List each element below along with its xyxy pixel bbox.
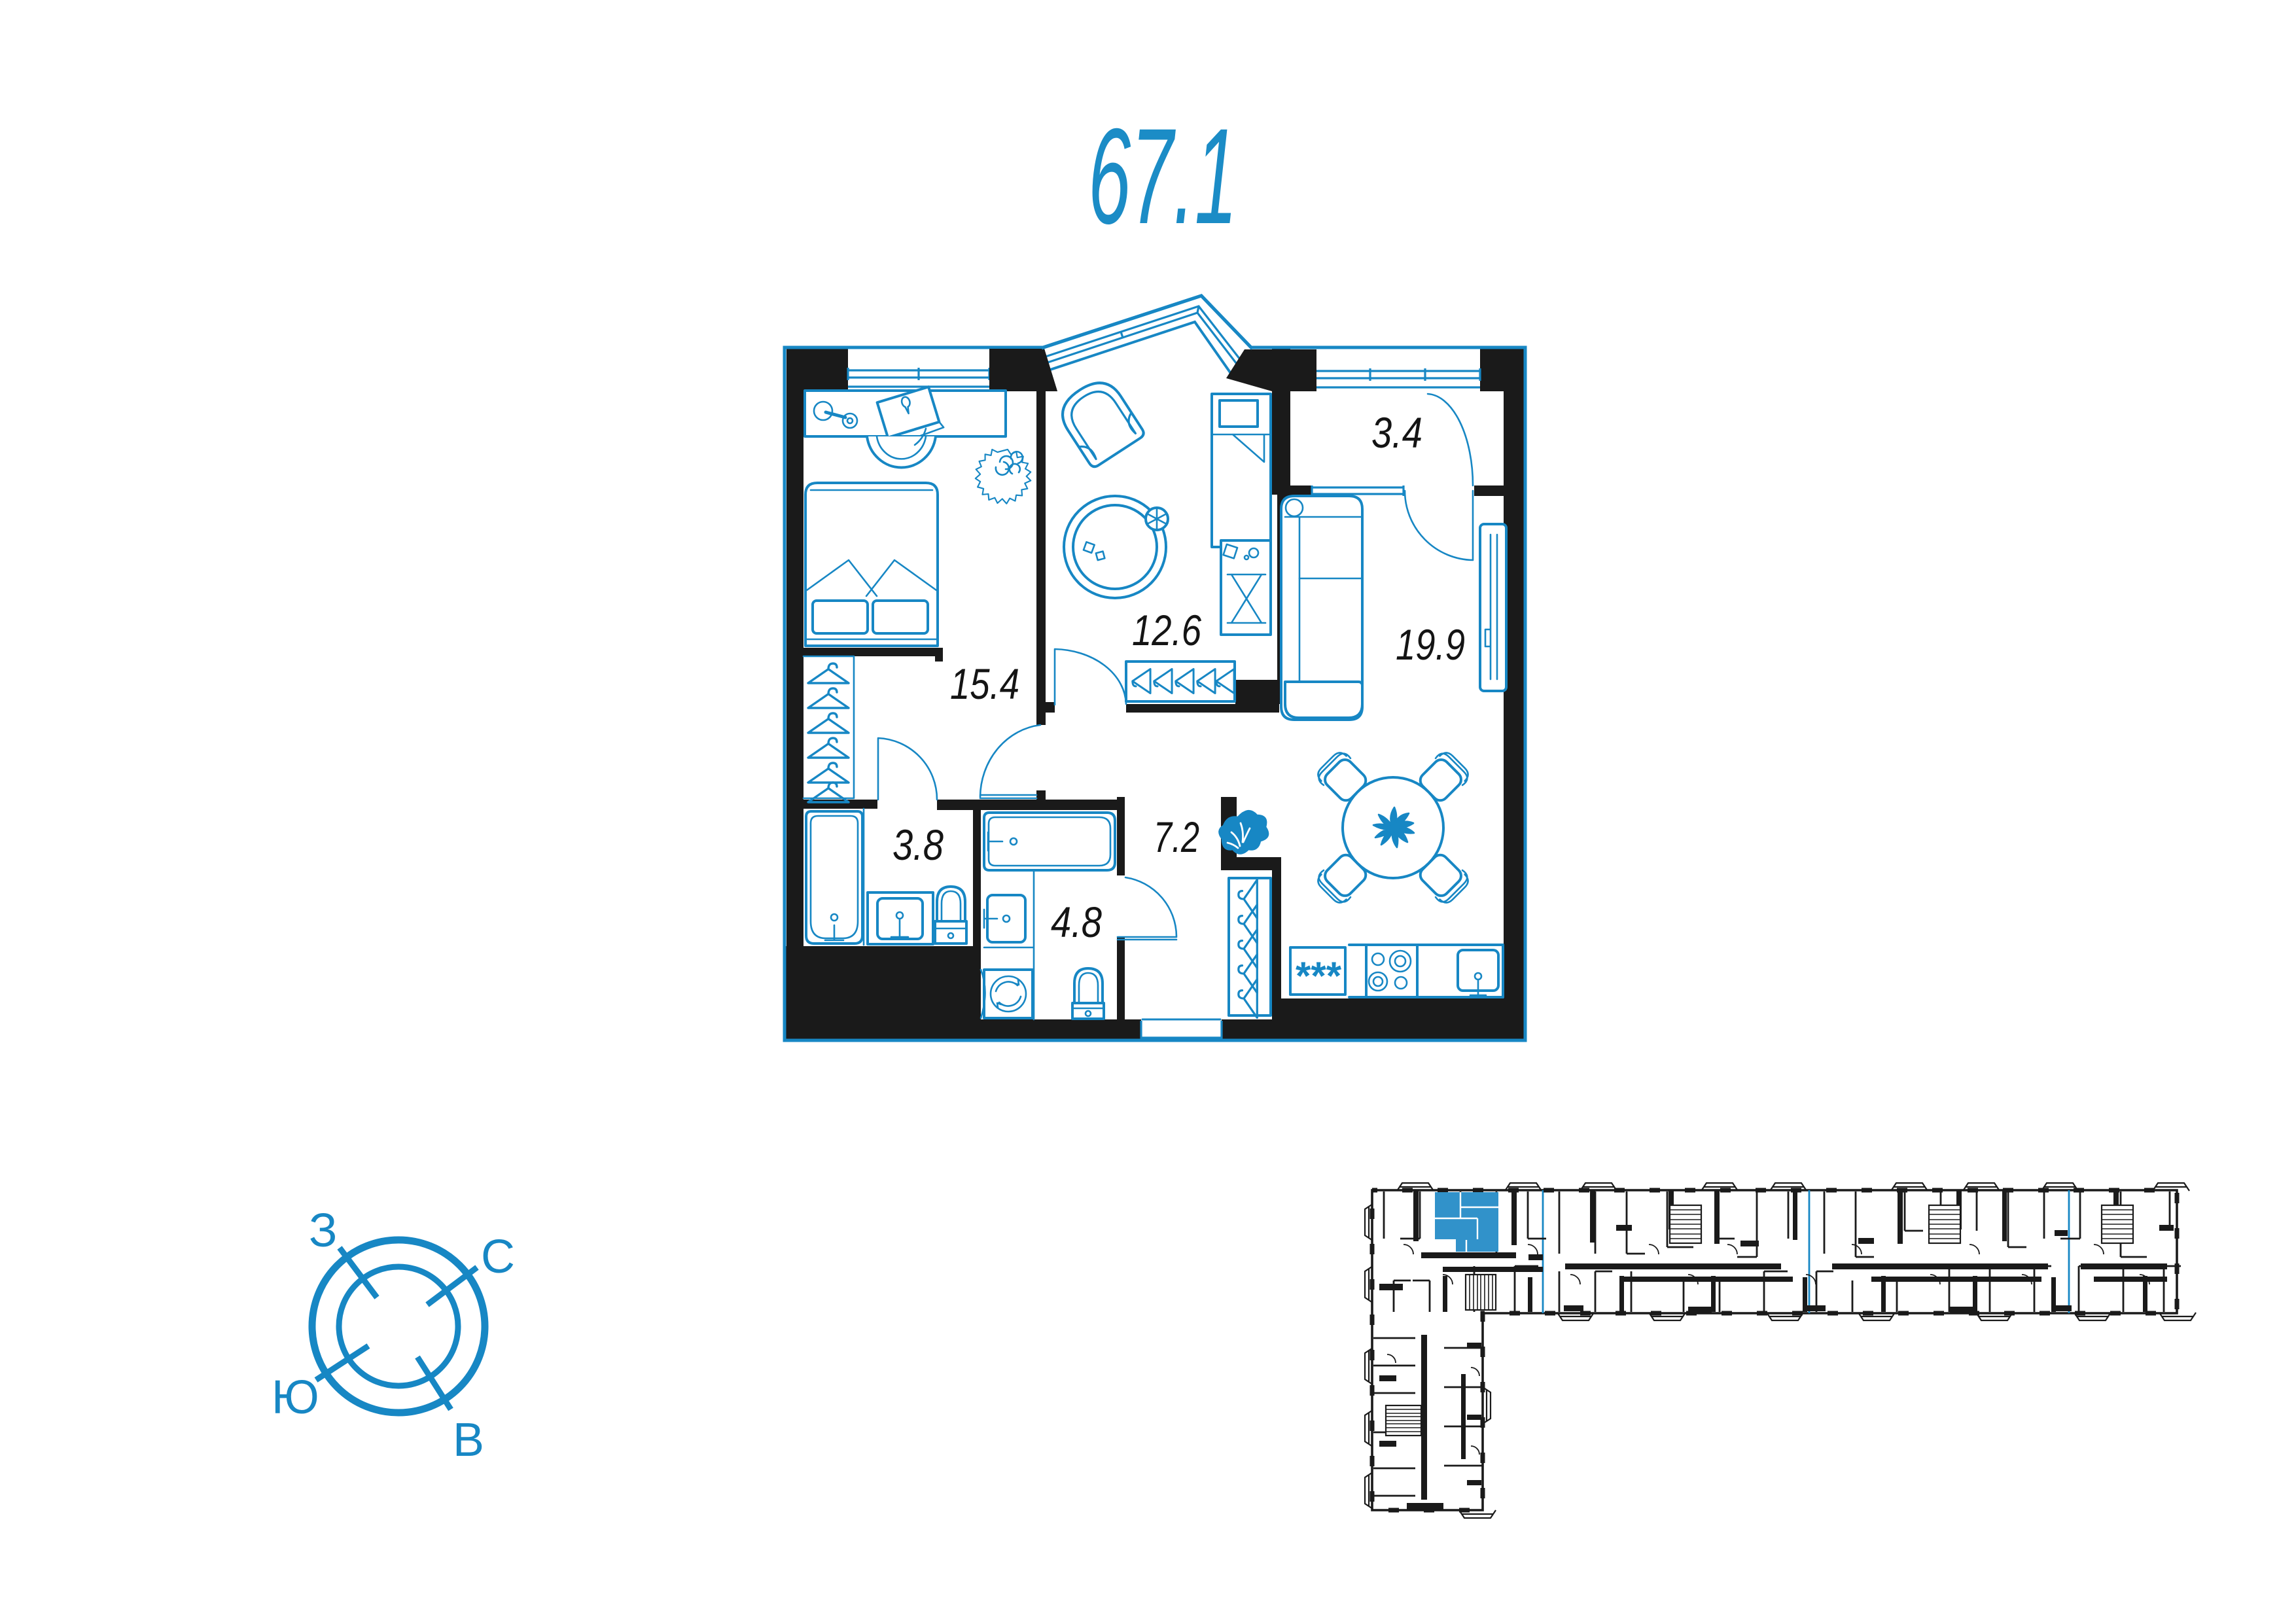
svg-text:3.8: 3.8 xyxy=(892,821,944,869)
svg-text:67.1: 67.1 xyxy=(1088,101,1237,253)
svg-text:19.9: 19.9 xyxy=(1396,620,1465,669)
svg-text:4.8: 4.8 xyxy=(1051,898,1102,946)
svg-text:12.6: 12.6 xyxy=(1132,606,1201,654)
svg-text:З: З xyxy=(309,1205,338,1257)
svg-text:С: С xyxy=(481,1231,515,1283)
svg-text:15.4: 15.4 xyxy=(950,660,1019,708)
svg-text:***: *** xyxy=(1296,954,1342,998)
svg-text:В: В xyxy=(453,1414,484,1466)
svg-text:3.4: 3.4 xyxy=(1371,408,1422,457)
svg-text:7.2: 7.2 xyxy=(1154,813,1199,861)
svg-text:Ю: Ю xyxy=(272,1371,319,1424)
